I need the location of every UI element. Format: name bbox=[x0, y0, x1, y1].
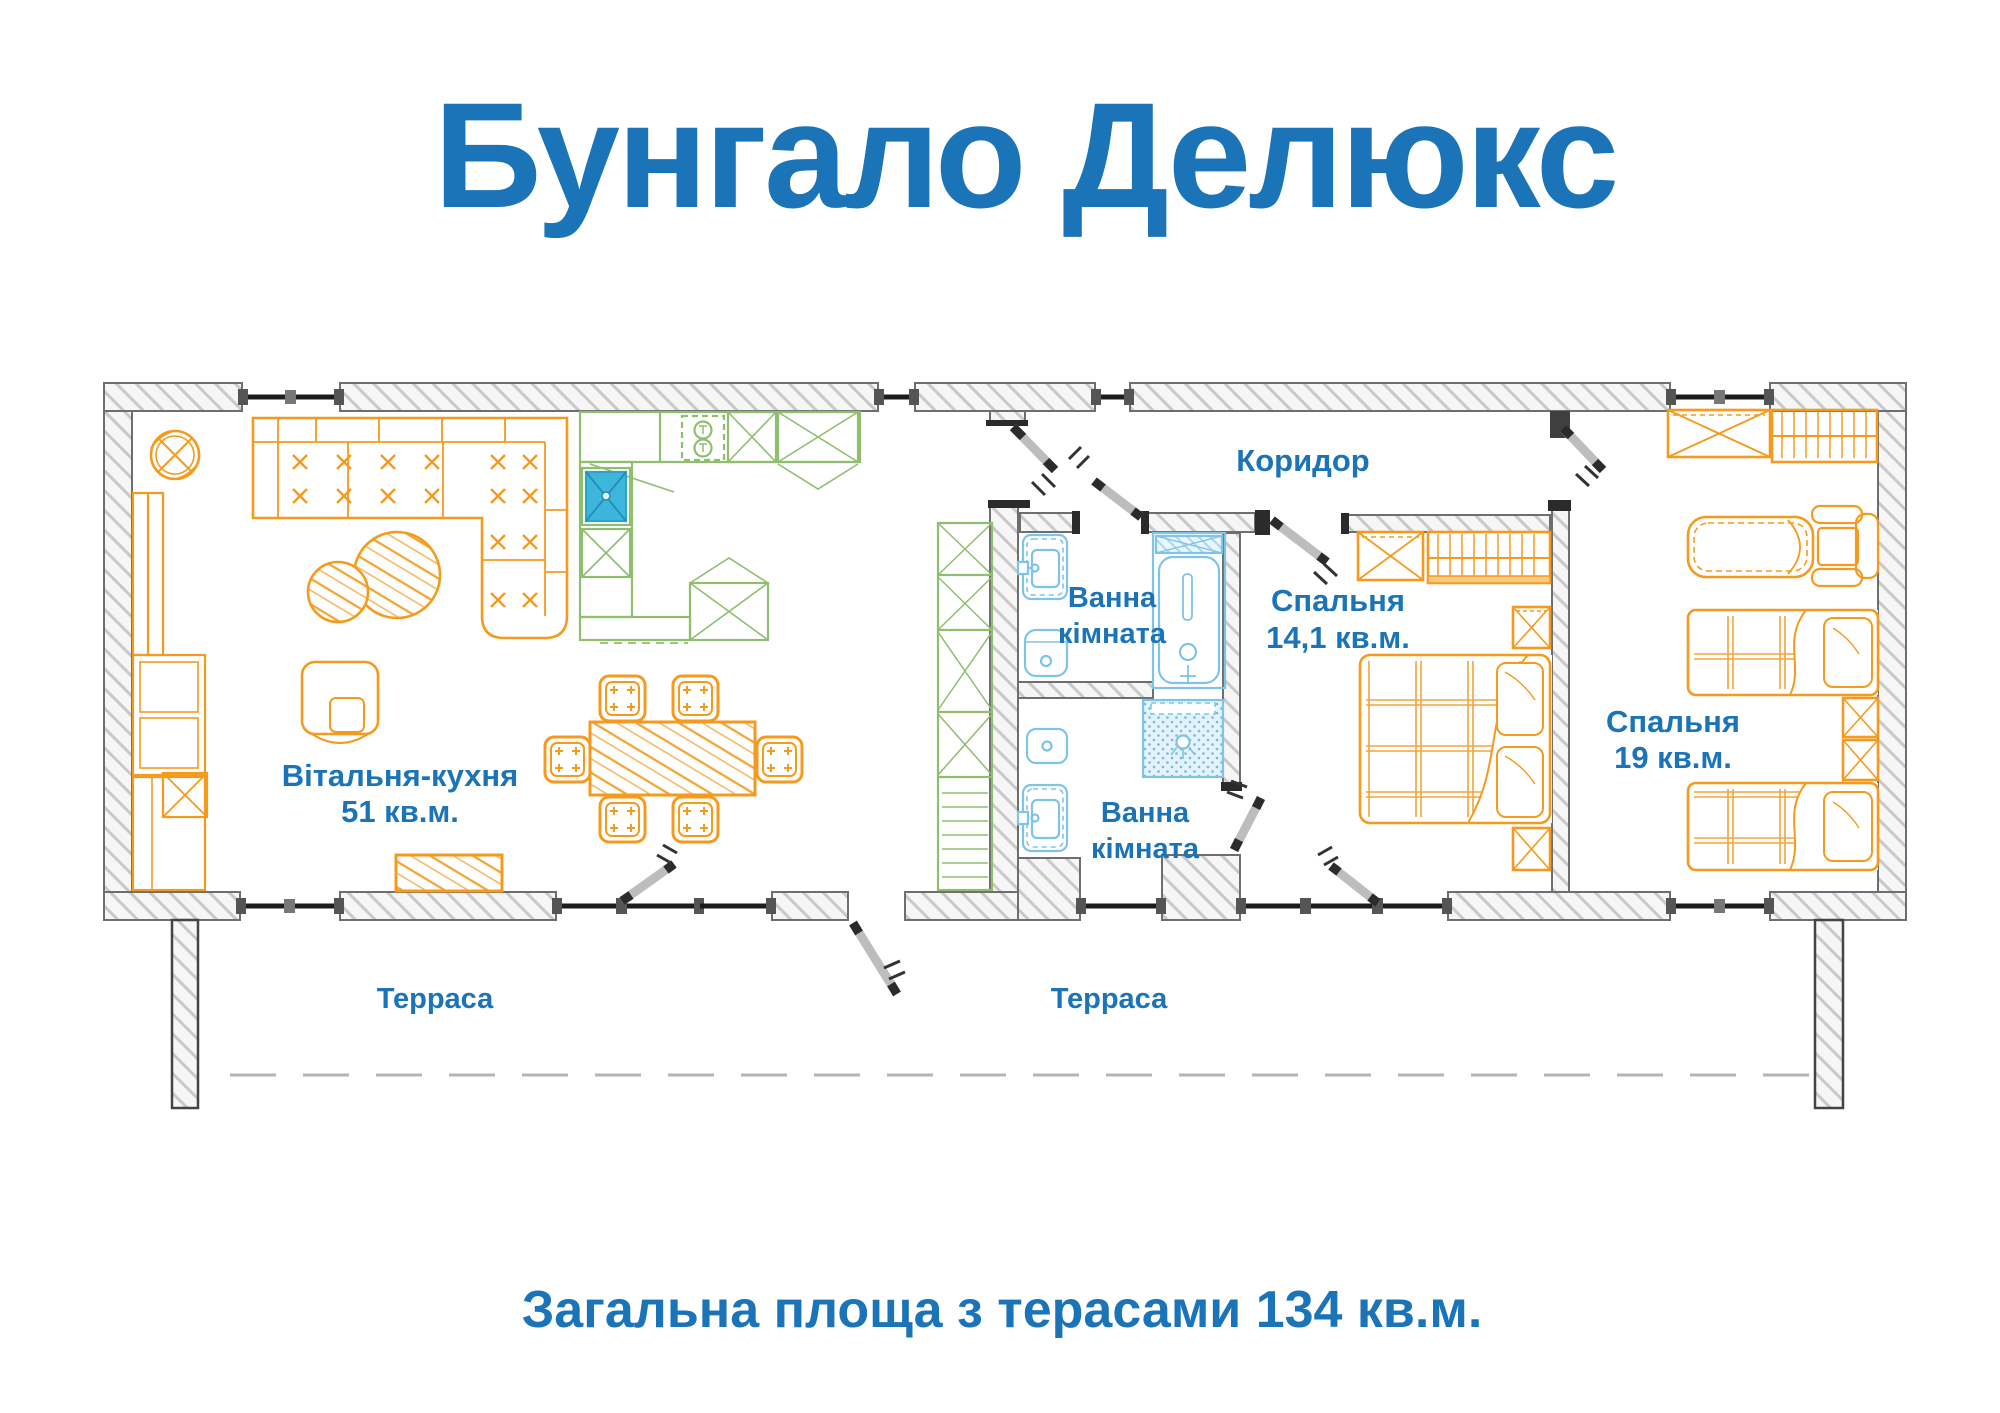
entry-door bbox=[1013, 427, 1055, 495]
tall-cabinet-column bbox=[938, 523, 992, 890]
baby-crib bbox=[1688, 517, 1813, 577]
kitchen bbox=[580, 412, 992, 890]
label-terrace-left: Терраса bbox=[377, 983, 494, 1015]
label-bathroom-bottom-2: кімната bbox=[1091, 833, 1200, 865]
wardrobe-second bbox=[1772, 410, 1877, 462]
side-table bbox=[163, 773, 207, 817]
wall-right bbox=[1878, 383, 1906, 920]
double-bed bbox=[1360, 655, 1552, 823]
window-top-4 bbox=[1666, 389, 1774, 405]
label-bathroom-top-1: Ванна bbox=[1068, 582, 1157, 614]
label-bathroom-bottom-1: Ванна bbox=[1101, 797, 1190, 829]
tv-stand bbox=[396, 855, 502, 891]
bathtub bbox=[1153, 533, 1225, 688]
window-top-1 bbox=[238, 389, 344, 405]
ceiling-fan-icon bbox=[151, 431, 199, 479]
shower bbox=[1143, 700, 1223, 777]
nightstand-second-2 bbox=[1843, 740, 1878, 780]
nightstand-main-2 bbox=[1513, 828, 1550, 870]
bathroom-top-door bbox=[1069, 447, 1141, 517]
label-bedroom-second: Спальня bbox=[1606, 704, 1740, 739]
wall-kitchen-bath bbox=[990, 505, 1018, 892]
twin-bed-2 bbox=[1688, 783, 1878, 870]
kitchen-sink bbox=[582, 468, 630, 525]
label-bathroom-top-2: кімната bbox=[1058, 618, 1167, 650]
page-title: Бунгало Делюкс bbox=[434, 71, 1616, 239]
label-living-kitchen: Вітальня-кухня bbox=[282, 758, 519, 793]
bedroom-main-door bbox=[1272, 520, 1337, 584]
bathroom-bottom-door bbox=[1227, 781, 1261, 850]
terrace-door-leaf-bedroom bbox=[1318, 847, 1378, 903]
armchair bbox=[302, 662, 378, 743]
living-room-furniture bbox=[133, 418, 802, 891]
nursery-chair bbox=[1812, 506, 1878, 586]
twin-bed-1 bbox=[1688, 610, 1878, 695]
sink-top bbox=[1018, 535, 1067, 599]
bedroom-second-furniture bbox=[1668, 410, 1878, 870]
total-area-caption: Загальна площа з терасами 134 кв.м. bbox=[522, 1281, 1483, 1339]
sink-bottom bbox=[1018, 785, 1067, 851]
nightstand-second-1 bbox=[1843, 698, 1878, 737]
terrace-post-left bbox=[172, 920, 198, 1108]
window-top-2 bbox=[874, 389, 919, 405]
label-terrace-right: Терраса bbox=[1051, 983, 1168, 1015]
terrace-door-leaf-living bbox=[622, 845, 677, 901]
wall-bedrooms bbox=[1552, 509, 1569, 892]
window-bottom-4 bbox=[1666, 898, 1774, 914]
wall-shelving bbox=[133, 493, 207, 890]
label-bedroom-main-area: 14,1 кв.м. bbox=[1266, 620, 1410, 655]
floorplan-page: Вітальня-кухня 51 кв.м. Ванна кімната Ва… bbox=[0, 0, 2000, 1413]
stove bbox=[682, 416, 724, 460]
coffee-tables bbox=[308, 532, 440, 622]
window-bottom-2 bbox=[700, 898, 776, 914]
label-corridor: Коридор bbox=[1236, 443, 1369, 478]
window-top-3 bbox=[1091, 389, 1134, 405]
window-bottom-3 bbox=[1076, 898, 1166, 914]
wall-left bbox=[104, 383, 132, 920]
dresser-main bbox=[1358, 532, 1423, 580]
terrace-door-bedroom bbox=[1236, 898, 1452, 914]
floorplan-drawing: Вітальня-кухня 51 кв.м. Ванна кімната Ва… bbox=[0, 0, 2000, 1413]
label-bedroom-second-area: 19 кв.м. bbox=[1614, 740, 1732, 775]
toilet-bottom bbox=[1027, 729, 1067, 763]
label-living-kitchen-area: 51 кв.м. bbox=[341, 794, 459, 829]
nightstand-main-1 bbox=[1513, 607, 1550, 648]
terrace-post-right bbox=[1815, 920, 1843, 1108]
label-bedroom-main: Спальня bbox=[1271, 583, 1405, 618]
kitchen-island-cabinet bbox=[690, 558, 768, 640]
kitchen-cabinet-left bbox=[582, 529, 630, 577]
bedroom-second-door bbox=[1563, 428, 1603, 486]
wardrobe-main bbox=[1428, 532, 1550, 583]
dining-set bbox=[545, 676, 802, 842]
window-bottom-1 bbox=[236, 898, 344, 914]
terrace-door-leaf-outside bbox=[853, 923, 905, 994]
dresser-second bbox=[1668, 410, 1770, 457]
